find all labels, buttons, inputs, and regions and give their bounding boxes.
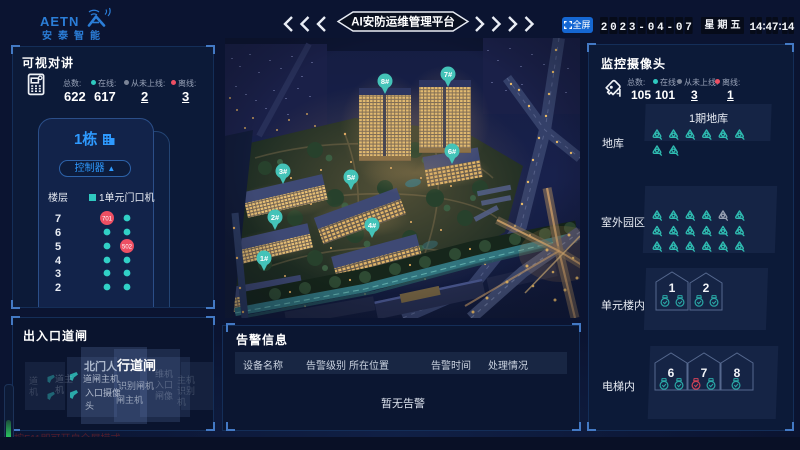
svg-text:502: 502 bbox=[122, 245, 133, 251]
svg-text:6#: 6# bbox=[448, 147, 457, 156]
svg-text:7: 7 bbox=[55, 213, 61, 225]
svg-text:4: 4 bbox=[55, 255, 62, 267]
svg-text:1: 1 bbox=[669, 281, 676, 295]
svg-text:安泰智能: 安泰智能 bbox=[42, 29, 106, 41]
svg-text:AI安防运维管理平台: AI安防运维管理平台 bbox=[351, 15, 455, 29]
svg-text:2#: 2# bbox=[271, 213, 280, 222]
svg-text:2: 2 bbox=[619, 22, 626, 34]
svg-text:AETN: AETN bbox=[40, 14, 79, 29]
svg-text:8: 8 bbox=[734, 366, 741, 380]
svg-text:7: 7 bbox=[685, 22, 692, 34]
svg-text:701: 701 bbox=[102, 217, 113, 223]
svg-text:1#: 1# bbox=[260, 254, 269, 263]
svg-text:6: 6 bbox=[668, 366, 675, 380]
svg-text:-: - bbox=[638, 22, 645, 34]
svg-text:3: 3 bbox=[629, 22, 636, 34]
svg-text:0: 0 bbox=[610, 22, 617, 34]
svg-text:3: 3 bbox=[55, 268, 61, 280]
svg-text:4: 4 bbox=[657, 22, 664, 34]
svg-text:3#: 3# bbox=[279, 167, 288, 176]
svg-text:2: 2 bbox=[703, 281, 710, 295]
svg-text:4#: 4# bbox=[368, 221, 377, 230]
svg-text:4: 4 bbox=[788, 22, 795, 34]
svg-text:8#: 8# bbox=[381, 77, 390, 86]
svg-text:5: 5 bbox=[55, 241, 61, 253]
svg-text:5#: 5# bbox=[347, 173, 356, 182]
svg-text:0: 0 bbox=[648, 22, 655, 34]
svg-text:2: 2 bbox=[55, 282, 61, 294]
svg-text:7: 7 bbox=[701, 366, 708, 380]
svg-text:6: 6 bbox=[55, 227, 61, 239]
svg-text:2: 2 bbox=[601, 22, 608, 34]
svg-text:7#: 7# bbox=[444, 70, 453, 79]
svg-text:0: 0 bbox=[676, 22, 683, 34]
svg-text:-: - bbox=[666, 22, 673, 34]
